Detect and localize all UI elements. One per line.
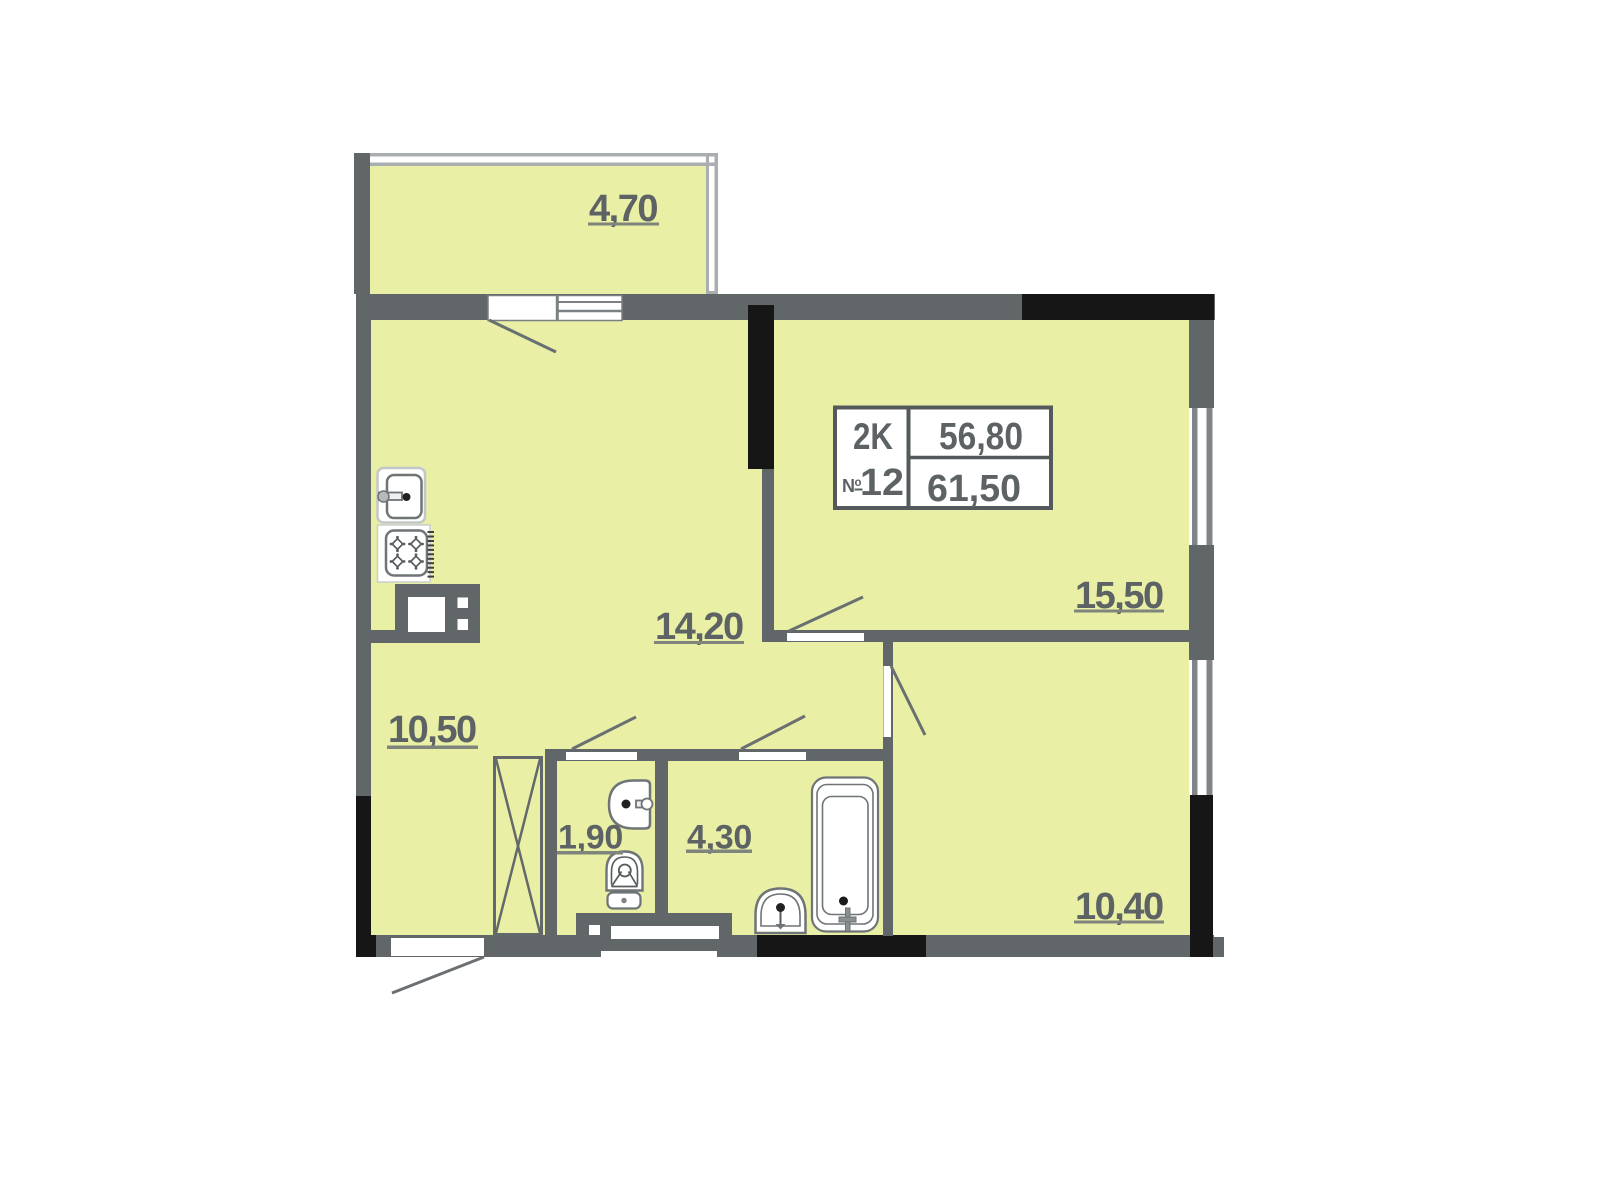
svg-text:10,50: 10,50 bbox=[388, 709, 476, 751]
svg-text:12: 12 bbox=[860, 462, 904, 504]
svg-text:N: N bbox=[842, 476, 855, 496]
svg-text:2K: 2K bbox=[853, 416, 893, 457]
svg-text:1,90: 1,90 bbox=[558, 819, 623, 857]
svg-text:61,50: 61,50 bbox=[927, 468, 1021, 510]
svg-text:56,80: 56,80 bbox=[939, 416, 1023, 458]
